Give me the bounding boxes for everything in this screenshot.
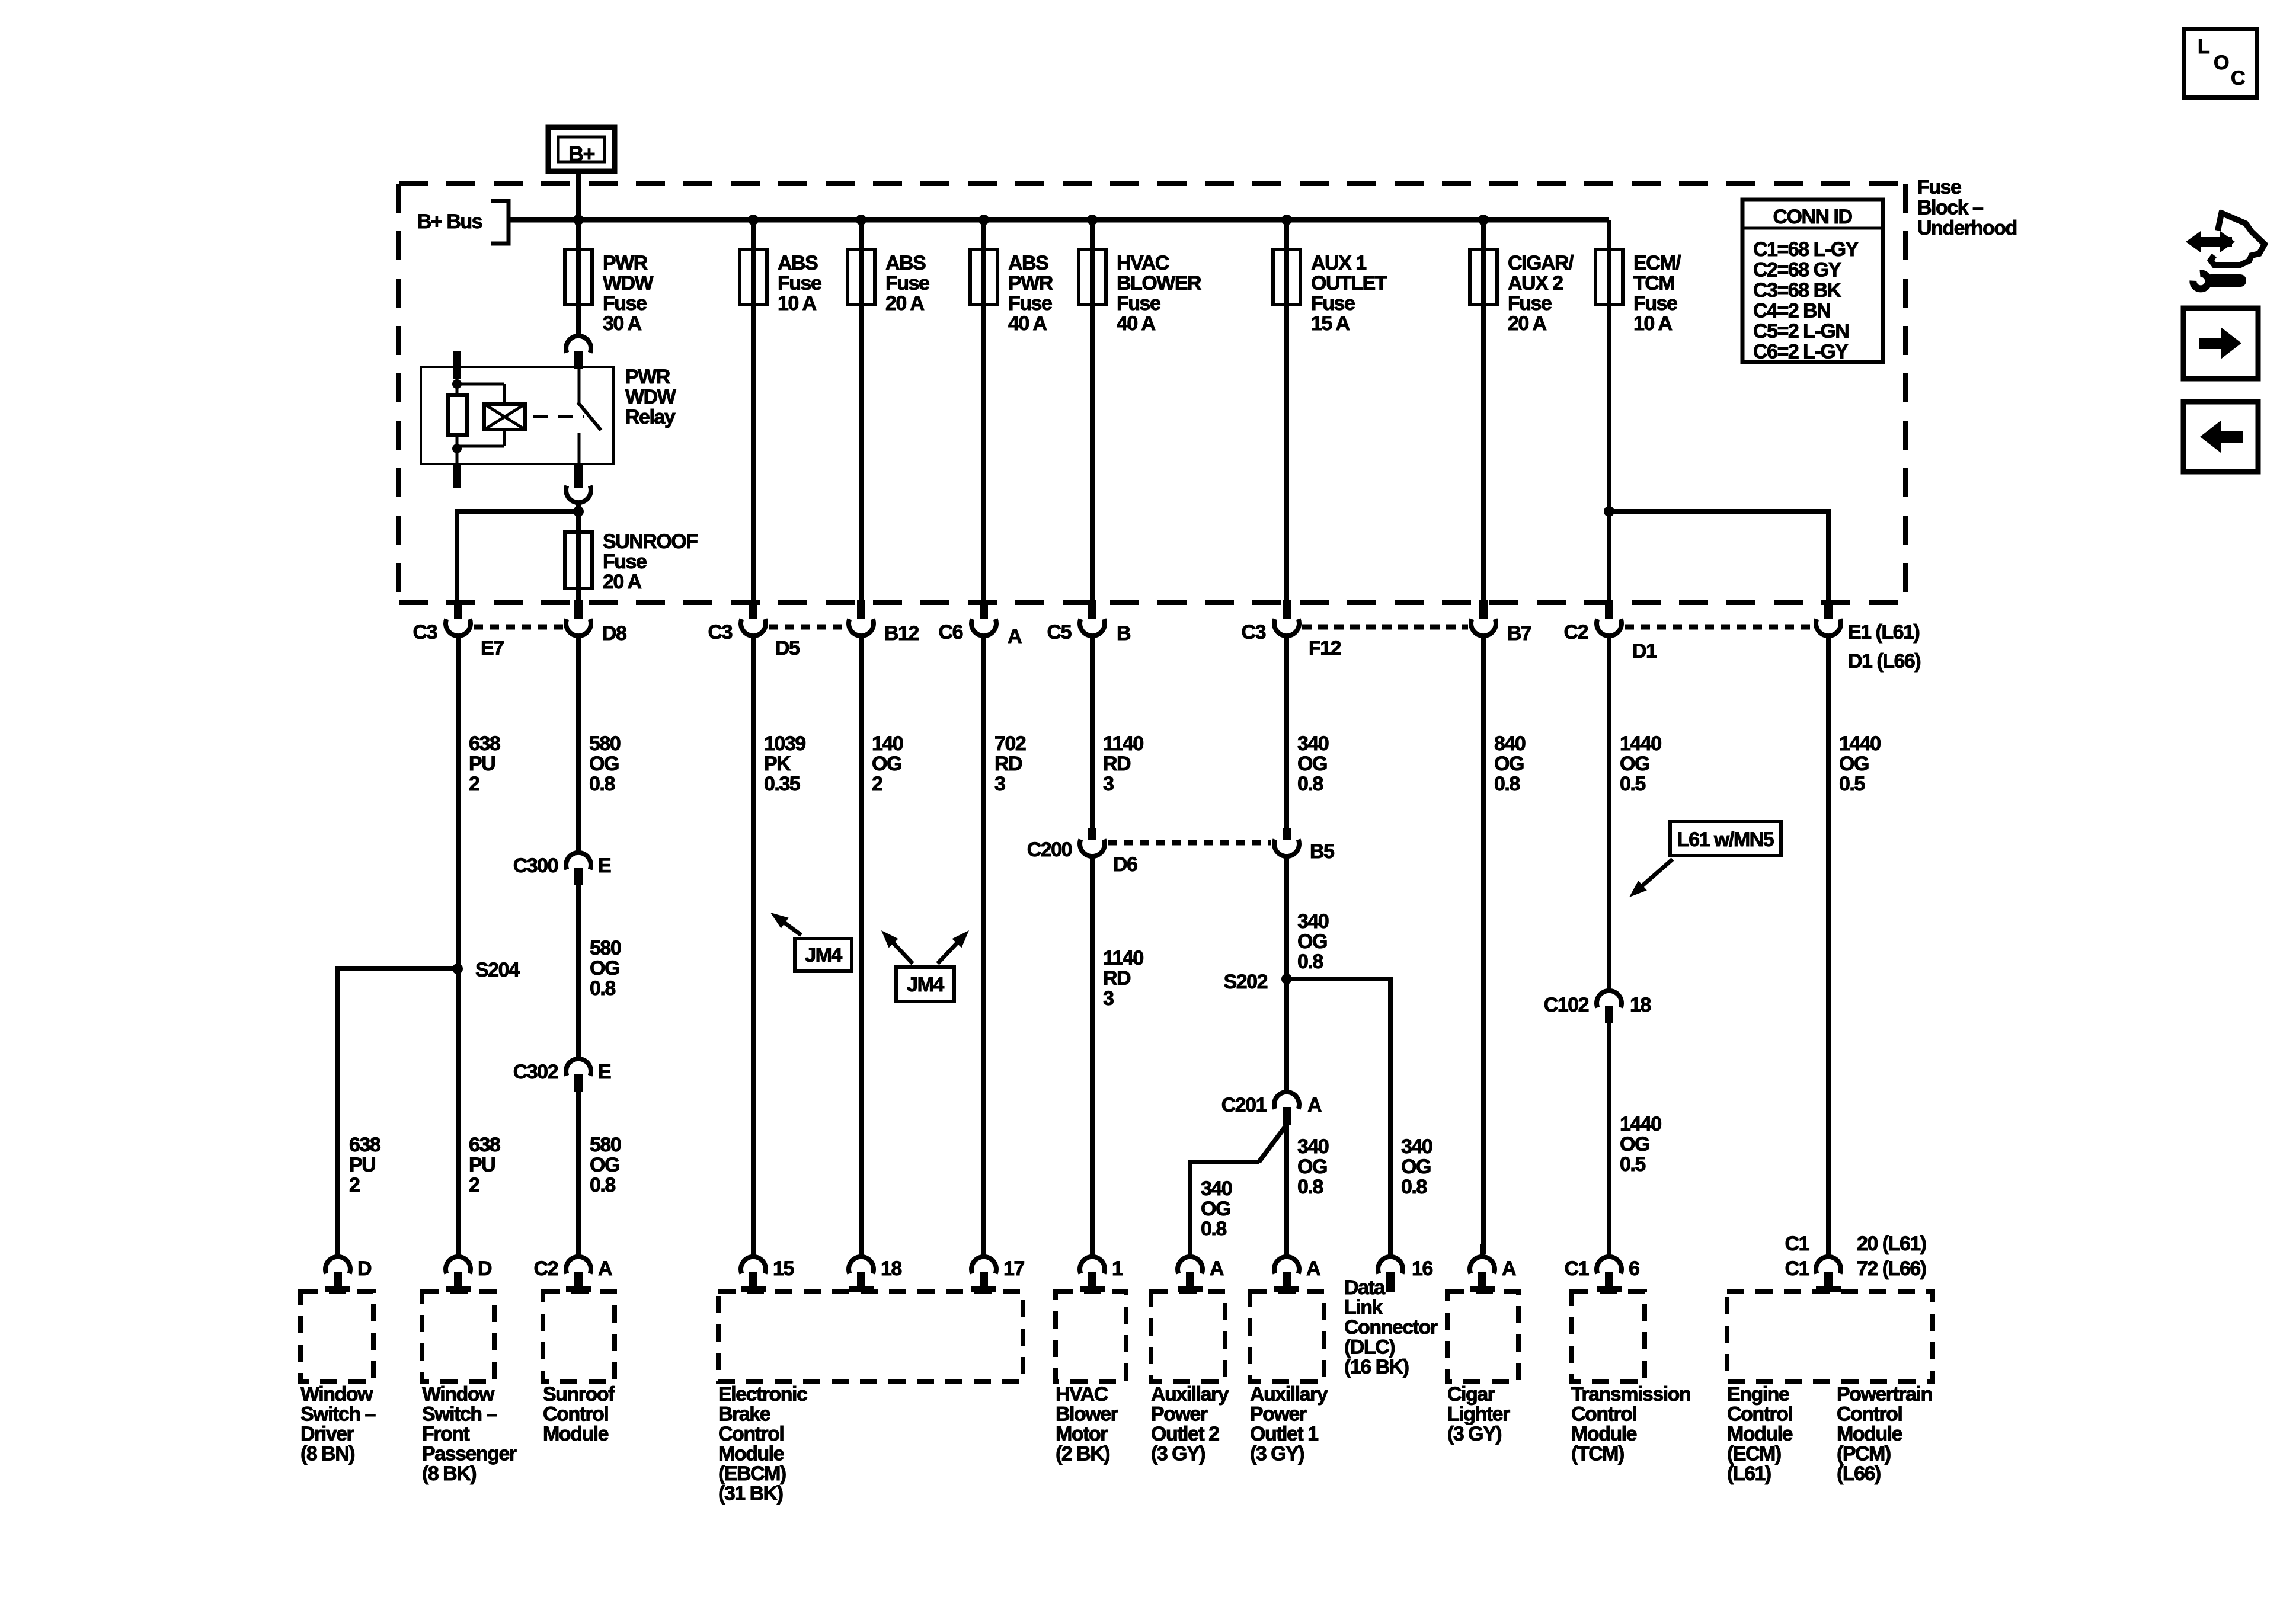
svg-text:C302: C302	[513, 1061, 558, 1083]
svg-text:RD: RD	[1103, 753, 1131, 775]
svg-text:Control: Control	[1571, 1403, 1636, 1426]
svg-text:PU: PU	[469, 753, 495, 775]
svg-text:340: 340	[1201, 1177, 1232, 1200]
svg-text:OUTLET: OUTLET	[1311, 272, 1387, 295]
svg-text:0.5: 0.5	[1620, 1153, 1645, 1176]
svg-text:3: 3	[994, 773, 1005, 795]
svg-text:OG: OG	[1297, 753, 1327, 775]
svg-text:20 A: 20 A	[885, 292, 925, 315]
svg-text:D1: D1	[1632, 640, 1657, 662]
svg-text:340: 340	[1297, 910, 1329, 933]
svg-text:OG: OG	[1620, 753, 1649, 775]
svg-text:(TCM): (TCM)	[1571, 1443, 1624, 1465]
svg-text:E1 (L61): E1 (L61)	[1848, 621, 1919, 644]
svg-text:JM4: JM4	[805, 944, 842, 966]
svg-text:PWR: PWR	[625, 366, 670, 388]
svg-text:340: 340	[1297, 732, 1329, 755]
svg-text:20 A: 20 A	[1508, 312, 1547, 335]
svg-text:SUNROOF: SUNROOF	[603, 530, 698, 553]
svg-text:OG: OG	[1201, 1198, 1230, 1220]
svg-text:E: E	[598, 854, 611, 877]
svg-text:0.5: 0.5	[1620, 773, 1645, 795]
svg-text:C102: C102	[1544, 994, 1589, 1016]
svg-text:OG: OG	[1839, 753, 1869, 775]
svg-text:(3 GY): (3 GY)	[1447, 1423, 1501, 1445]
svg-text:Fuse: Fuse	[1633, 292, 1677, 315]
svg-text:2: 2	[349, 1174, 360, 1196]
svg-text:Fuse: Fuse	[1117, 292, 1160, 315]
svg-text:CIGAR/: CIGAR/	[1508, 252, 1574, 274]
svg-text:Switch –: Switch –	[300, 1403, 376, 1426]
svg-text:0.35: 0.35	[764, 773, 800, 795]
svg-text:B+ Bus: B+ Bus	[417, 210, 482, 233]
svg-text:Driver: Driver	[300, 1423, 354, 1445]
svg-text:(2 BK): (2 BK)	[1056, 1443, 1109, 1465]
svg-text:C1: C1	[1785, 1233, 1809, 1255]
svg-text:C300: C300	[513, 854, 558, 877]
svg-text:OG: OG	[1401, 1156, 1431, 1178]
svg-text:1039: 1039	[764, 732, 805, 755]
svg-text:Fuse: Fuse	[1917, 176, 1961, 199]
svg-text:(3 GY): (3 GY)	[1151, 1443, 1205, 1465]
svg-text:Window: Window	[300, 1383, 373, 1406]
svg-text:Control: Control	[718, 1423, 784, 1445]
svg-text:17: 17	[1003, 1257, 1024, 1280]
svg-text:JM4: JM4	[907, 974, 944, 996]
svg-text:3: 3	[1103, 773, 1114, 795]
svg-text:C3=68 BK: C3=68 BK	[1753, 279, 1842, 302]
svg-text:40 A: 40 A	[1008, 312, 1047, 335]
svg-text:C6=2 L-GY: C6=2 L-GY	[1753, 341, 1849, 363]
svg-text:340: 340	[1297, 1135, 1329, 1158]
svg-text:A: A	[598, 1257, 612, 1280]
svg-text:1440: 1440	[1620, 1113, 1661, 1135]
svg-text:40 A: 40 A	[1117, 312, 1156, 335]
svg-text:Connector: Connector	[1344, 1316, 1438, 1339]
svg-text:Powertrain: Powertrain	[1837, 1383, 1932, 1406]
svg-text:B5: B5	[1310, 840, 1334, 863]
svg-text:C2: C2	[1564, 621, 1588, 644]
svg-text:0.8: 0.8	[590, 977, 615, 1000]
svg-text:(3 GY): (3 GY)	[1250, 1443, 1304, 1465]
svg-text:Outlet 2: Outlet 2	[1151, 1423, 1219, 1445]
svg-text:A: A	[1307, 1094, 1322, 1116]
svg-text:20 A: 20 A	[603, 571, 642, 593]
svg-text:Module: Module	[1837, 1423, 1902, 1445]
svg-text:Window: Window	[422, 1383, 495, 1406]
svg-text:OG: OG	[1297, 1156, 1327, 1178]
svg-text:840: 840	[1494, 732, 1526, 755]
svg-text:Control: Control	[1727, 1403, 1792, 1426]
svg-text:Block –: Block –	[1917, 197, 1983, 219]
svg-text:E: E	[598, 1061, 611, 1083]
svg-text:C5: C5	[1047, 621, 1072, 644]
svg-text:F12: F12	[1309, 637, 1341, 660]
svg-text:2: 2	[469, 1174, 479, 1196]
svg-text:C200: C200	[1027, 838, 1072, 861]
svg-text:TCM: TCM	[1633, 272, 1674, 295]
svg-text:0.8: 0.8	[589, 773, 615, 795]
svg-text:D1 (L66): D1 (L66)	[1848, 650, 1920, 673]
svg-text:PK: PK	[764, 753, 791, 775]
svg-text:C1: C1	[1785, 1257, 1809, 1280]
svg-text:Lighter: Lighter	[1447, 1403, 1510, 1426]
svg-text:D: D	[357, 1257, 372, 1280]
svg-text:Electronic: Electronic	[718, 1383, 807, 1406]
svg-text:638: 638	[469, 732, 500, 755]
svg-text:Engine: Engine	[1727, 1383, 1789, 1406]
svg-text:D: D	[478, 1257, 492, 1280]
svg-text:OG: OG	[872, 753, 901, 775]
svg-text:(8 BN): (8 BN)	[300, 1443, 354, 1465]
svg-text:D5: D5	[775, 637, 800, 660]
svg-text:Blower: Blower	[1056, 1403, 1118, 1426]
svg-text:Module: Module	[1571, 1423, 1637, 1445]
svg-text:D6: D6	[1113, 853, 1137, 876]
svg-text:O: O	[2214, 52, 2229, 74]
svg-text:AUX 1: AUX 1	[1311, 252, 1366, 274]
svg-text:PWR: PWR	[603, 252, 648, 274]
svg-text:B+: B+	[568, 142, 594, 166]
svg-text:C3: C3	[708, 621, 733, 644]
svg-text:E7: E7	[481, 637, 504, 660]
svg-text:10 A: 10 A	[778, 292, 817, 315]
svg-text:580: 580	[589, 732, 621, 755]
svg-text:(31 BK): (31 BK)	[718, 1483, 783, 1505]
svg-text:BLOWER: BLOWER	[1117, 272, 1201, 295]
svg-text:C4=2 BN: C4=2 BN	[1753, 300, 1830, 322]
svg-text:0.8: 0.8	[1401, 1176, 1427, 1198]
svg-text:Power: Power	[1250, 1403, 1307, 1426]
svg-text:RD: RD	[1103, 967, 1131, 990]
svg-text:580: 580	[590, 1134, 621, 1156]
svg-text:Brake: Brake	[718, 1403, 770, 1426]
svg-text:C1=68 L-GY: C1=68 L-GY	[1753, 238, 1859, 261]
svg-text:6: 6	[1629, 1257, 1639, 1280]
svg-text:(EBCM): (EBCM)	[718, 1462, 786, 1485]
svg-text:Fuse: Fuse	[1008, 292, 1052, 315]
svg-text:RD: RD	[994, 753, 1022, 775]
svg-text:(L66): (L66)	[1837, 1462, 1881, 1485]
svg-text:HVAC: HVAC	[1056, 1383, 1108, 1406]
svg-text:Switch –: Switch –	[422, 1403, 497, 1426]
svg-text:16: 16	[1412, 1257, 1432, 1280]
svg-text:0.8: 0.8	[1201, 1218, 1226, 1240]
svg-text:Module: Module	[543, 1423, 609, 1445]
svg-text:(16 BK): (16 BK)	[1344, 1356, 1409, 1378]
svg-text:15 A: 15 A	[1311, 312, 1350, 335]
svg-text:PU: PU	[469, 1154, 495, 1176]
svg-text:S204: S204	[475, 959, 520, 981]
svg-text:3: 3	[1103, 987, 1114, 1010]
svg-text:C1: C1	[1565, 1257, 1589, 1280]
svg-text:C201: C201	[1221, 1094, 1267, 1116]
svg-text:(ECM): (ECM)	[1727, 1443, 1781, 1465]
svg-text:C3: C3	[1242, 621, 1266, 644]
svg-text:30 A: 30 A	[603, 312, 642, 335]
svg-text:Control: Control	[543, 1403, 608, 1426]
svg-text:1440: 1440	[1839, 732, 1881, 755]
svg-text:D8: D8	[602, 622, 626, 645]
svg-text:638: 638	[349, 1134, 380, 1156]
svg-text:A: A	[1306, 1257, 1320, 1280]
svg-text:638: 638	[469, 1134, 500, 1156]
svg-text:Fuse: Fuse	[885, 272, 929, 295]
svg-text:HVAC: HVAC	[1117, 252, 1169, 274]
svg-text:2: 2	[469, 773, 479, 795]
svg-text:1140: 1140	[1103, 732, 1143, 755]
svg-text:AUX 2: AUX 2	[1508, 272, 1563, 295]
svg-text:Cigar: Cigar	[1447, 1383, 1495, 1406]
svg-text:C: C	[2231, 67, 2245, 89]
svg-text:L61 w/MN5: L61 w/MN5	[1677, 828, 1774, 851]
svg-text:140: 140	[872, 732, 903, 755]
svg-text:0.8: 0.8	[1297, 1176, 1323, 1198]
svg-text:(PCM): (PCM)	[1837, 1443, 1891, 1465]
svg-text:Relay: Relay	[625, 406, 676, 428]
svg-text:OG: OG	[1494, 753, 1524, 775]
svg-text:L: L	[2198, 36, 2209, 58]
svg-text:C2=68 GY: C2=68 GY	[1753, 259, 1842, 281]
svg-text:CONN ID: CONN ID	[1773, 206, 1852, 228]
svg-text:(8 BK): (8 BK)	[422, 1462, 476, 1485]
svg-text:WDW: WDW	[603, 272, 654, 295]
svg-text:0.8: 0.8	[1297, 950, 1323, 973]
svg-text:15: 15	[773, 1257, 794, 1280]
svg-text:Fuse: Fuse	[603, 550, 647, 573]
svg-text:Fuse: Fuse	[778, 272, 821, 295]
svg-text:B7: B7	[1507, 622, 1531, 645]
svg-text:Power: Power	[1151, 1403, 1208, 1426]
svg-text:1440: 1440	[1620, 732, 1661, 755]
svg-text:Motor: Motor	[1056, 1423, 1108, 1445]
svg-text:C6: C6	[939, 621, 963, 644]
svg-text:Auxillary: Auxillary	[1151, 1383, 1229, 1406]
svg-text:OG: OG	[589, 753, 619, 775]
svg-text:Data: Data	[1344, 1276, 1386, 1299]
svg-text:ECM/: ECM/	[1633, 252, 1681, 274]
svg-text:Sunroof: Sunroof	[543, 1383, 615, 1406]
svg-text:0.8: 0.8	[590, 1174, 615, 1196]
svg-text:ABS: ABS	[778, 252, 818, 274]
svg-text:Passenger: Passenger	[422, 1443, 517, 1465]
svg-text:B12: B12	[884, 622, 919, 645]
svg-text:Fuse: Fuse	[1508, 292, 1552, 315]
svg-text:A: A	[1502, 1257, 1516, 1280]
svg-text:Transmission: Transmission	[1571, 1383, 1690, 1406]
svg-text:A: A	[1210, 1257, 1224, 1280]
svg-text:Module: Module	[1727, 1423, 1793, 1445]
svg-text:Module: Module	[718, 1443, 784, 1465]
svg-text:0.5: 0.5	[1839, 773, 1865, 795]
svg-text:C3: C3	[413, 621, 437, 644]
svg-text:0.8: 0.8	[1494, 773, 1520, 795]
svg-text:ABS: ABS	[885, 252, 926, 274]
svg-text:ABS: ABS	[1008, 252, 1048, 274]
svg-text:Underhood: Underhood	[1917, 217, 2017, 239]
svg-text:OG: OG	[1297, 930, 1327, 953]
svg-text:A: A	[1008, 625, 1022, 648]
svg-text:WDW: WDW	[625, 386, 677, 408]
svg-text:72 (L66): 72 (L66)	[1857, 1257, 1926, 1280]
svg-text:S202: S202	[1224, 971, 1268, 993]
svg-text:1140: 1140	[1103, 947, 1143, 969]
svg-text:Fuse: Fuse	[603, 292, 647, 315]
svg-text:0.8: 0.8	[1297, 773, 1323, 795]
svg-text:340: 340	[1401, 1135, 1432, 1158]
svg-text:OG: OG	[590, 1154, 619, 1176]
svg-text:10 A: 10 A	[1633, 312, 1673, 335]
svg-text:PU: PU	[349, 1154, 375, 1176]
svg-text:Control: Control	[1837, 1403, 1902, 1426]
svg-text:20 (L61): 20 (L61)	[1857, 1233, 1926, 1255]
svg-text:Fuse: Fuse	[1311, 292, 1355, 315]
svg-text:Auxillary: Auxillary	[1250, 1383, 1328, 1406]
svg-text:Outlet 1: Outlet 1	[1250, 1423, 1318, 1445]
svg-text:(DLC): (DLC)	[1344, 1336, 1395, 1359]
svg-text:Front: Front	[422, 1423, 470, 1445]
svg-text:18: 18	[881, 1257, 901, 1280]
svg-text:702: 702	[994, 732, 1026, 755]
svg-text:18: 18	[1630, 994, 1651, 1016]
svg-text:1: 1	[1112, 1257, 1123, 1280]
svg-text:(L61): (L61)	[1727, 1462, 1771, 1485]
svg-text:2: 2	[872, 773, 882, 795]
svg-text:PWR: PWR	[1008, 272, 1053, 295]
svg-text:C5=2 L-GN: C5=2 L-GN	[1753, 320, 1849, 343]
svg-text:OG: OG	[590, 957, 619, 980]
svg-text:OG: OG	[1620, 1133, 1649, 1156]
svg-text:B: B	[1117, 622, 1131, 645]
svg-text:C2: C2	[534, 1257, 558, 1280]
svg-text:580: 580	[590, 937, 621, 959]
svg-text:Link: Link	[1344, 1297, 1383, 1319]
